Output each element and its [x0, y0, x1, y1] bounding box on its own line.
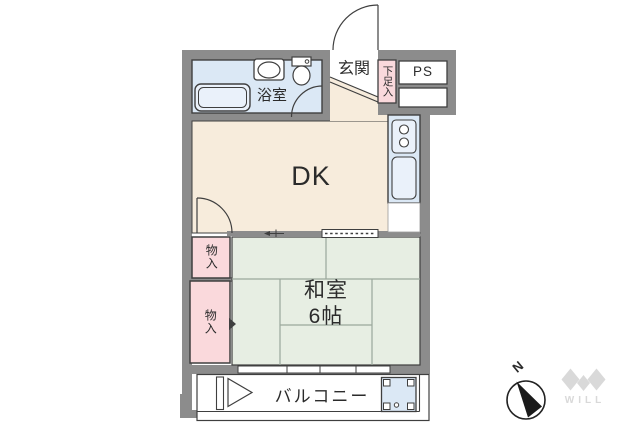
sink-icon	[254, 59, 284, 80]
room-label-entrance: 玄関	[338, 62, 370, 79]
room-label-pipe-space: PS	[413, 65, 433, 79]
meter-box	[399, 88, 447, 107]
wall-right	[420, 107, 430, 374]
compass-icon	[507, 381, 545, 419]
room-size-japanese-room: 6帖	[309, 306, 344, 328]
logo-mark	[562, 369, 606, 392]
stove-icon	[392, 120, 416, 153]
room-label-shoe-storage: 下足入	[381, 65, 392, 97]
kitchen-sink-icon	[392, 157, 416, 199]
floorplan-drawing	[0, 0, 640, 427]
floorplan: DK 和室 6帖 玄関 浴室 下足入 PS 物入 物入 バルコニー N WILL	[0, 0, 640, 427]
kitchen-counter	[388, 115, 420, 203]
bathtub-icon	[195, 84, 250, 111]
washer-pan-icon	[382, 378, 417, 412]
room-label-dk: DK	[291, 162, 331, 190]
toilet-icon	[292, 57, 311, 85]
entrance-door	[333, 5, 378, 50]
wall-bathroom-right	[322, 60, 330, 113]
wall-bathroom-bottom	[192, 113, 330, 121]
room-label-storage-top: 物入	[205, 244, 218, 270]
brand-logo-text: WILL	[565, 396, 605, 407]
window	[238, 366, 390, 373]
room-label-storage-bottom: 物入	[204, 309, 217, 335]
fridge-space	[388, 203, 420, 232]
room-label-balcony: バルコニー	[275, 388, 370, 406]
room-label-bathroom: 浴室	[257, 88, 287, 104]
room-label-japanese-room: 和室	[304, 280, 348, 302]
